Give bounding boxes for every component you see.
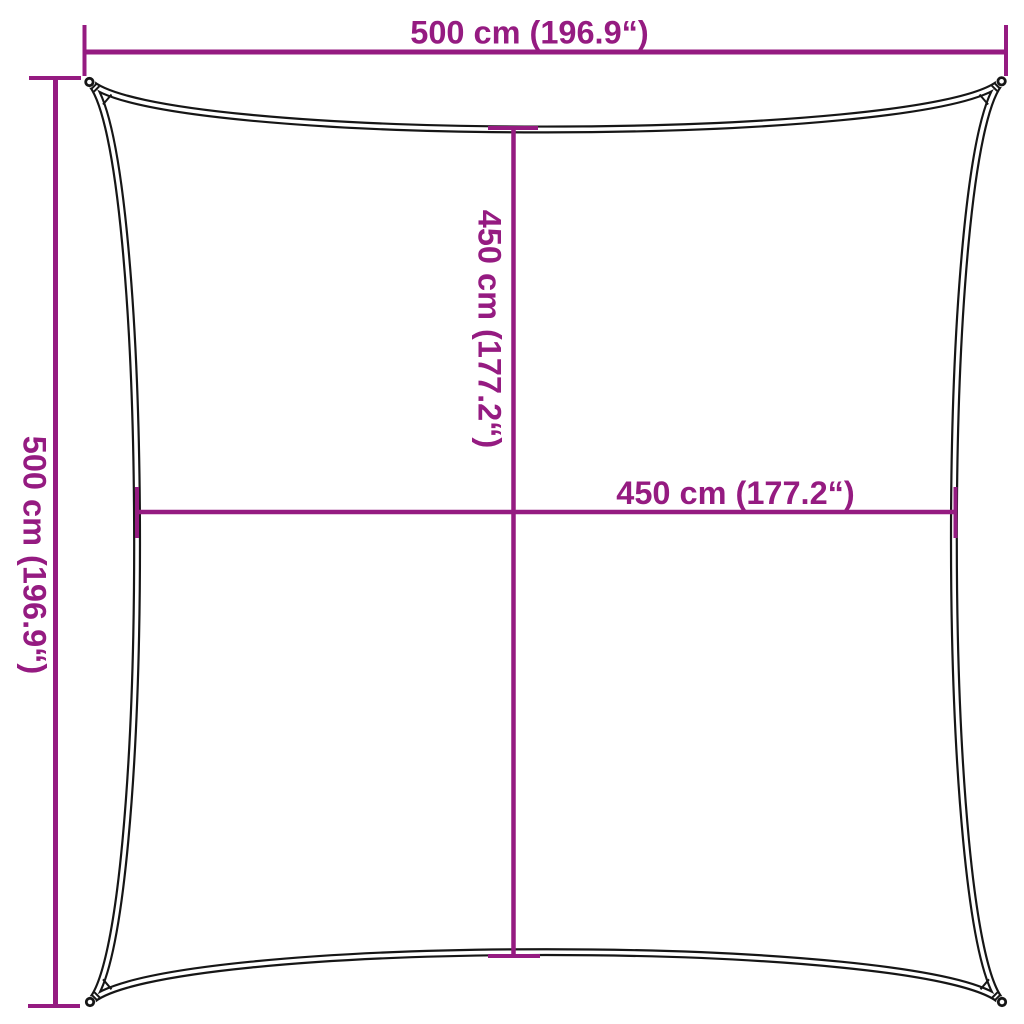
svg-text:450 cm (177.2“): 450 cm (177.2“) [472,210,508,448]
svg-text:500 cm (196.9“): 500 cm (196.9“) [17,436,53,674]
svg-text:500 cm (196.9“): 500 cm (196.9“) [410,15,648,51]
svg-text:450 cm (177.2“): 450 cm (177.2“) [616,475,854,511]
